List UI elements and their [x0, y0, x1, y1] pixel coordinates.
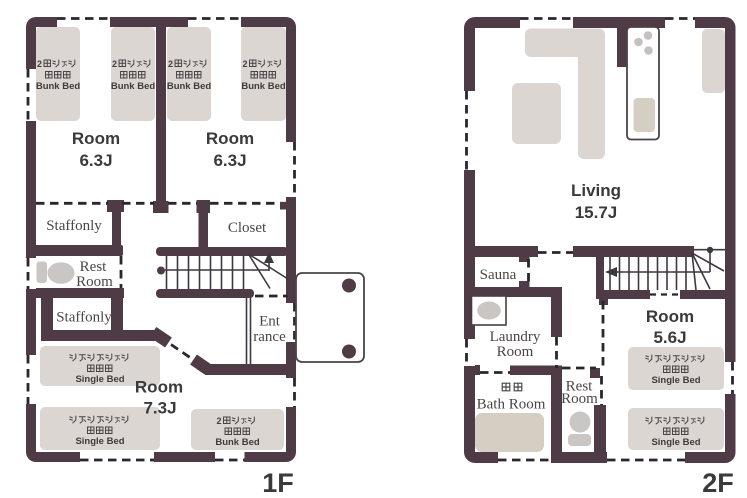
- svg-text:7.3J: 7.3J: [143, 399, 176, 418]
- svg-text:Single Bed: Single Bed: [75, 436, 124, 447]
- svg-text:Room: Room: [135, 378, 183, 397]
- svg-text:15.7J: 15.7J: [575, 203, 618, 222]
- svg-text:Rest: Rest: [80, 259, 108, 275]
- svg-text:2: 2: [168, 59, 173, 69]
- svg-text:Room: Room: [646, 307, 694, 326]
- svg-text:Room: Room: [206, 129, 254, 148]
- svg-text:Bunk Bed: Bunk Bed: [167, 81, 212, 92]
- svg-text:6.3J: 6.3J: [79, 151, 112, 170]
- svg-text:Staffonly: Staffonly: [46, 218, 102, 234]
- svg-text:Bunk Bed: Bunk Bed: [111, 81, 156, 92]
- svg-text:Bath Room: Bath Room: [477, 397, 546, 413]
- svg-text:6.3J: 6.3J: [213, 151, 246, 170]
- svg-text:Laundry: Laundry: [490, 329, 541, 345]
- svg-text:Sauna: Sauna: [480, 267, 517, 283]
- svg-text:2F: 2F: [702, 468, 734, 498]
- svg-text:Closet: Closet: [228, 220, 267, 236]
- svg-text:rance: rance: [253, 329, 286, 345]
- svg-text:Single Bed: Single Bed: [651, 375, 700, 386]
- svg-text:2: 2: [243, 59, 248, 69]
- svg-text:Bunk Bed: Bunk Bed: [36, 81, 81, 92]
- svg-text:Room: Room: [561, 391, 598, 407]
- svg-text:Room: Room: [497, 344, 534, 360]
- svg-text:5.6J: 5.6J: [653, 328, 686, 347]
- svg-text:Single Bed: Single Bed: [75, 374, 124, 385]
- svg-text:Bunk Bed: Bunk Bed: [241, 81, 286, 92]
- svg-text:Single Bed: Single Bed: [651, 437, 700, 448]
- svg-text:Living: Living: [571, 181, 621, 200]
- svg-text:2: 2: [112, 59, 117, 69]
- svg-text:2: 2: [37, 59, 42, 69]
- svg-text:Staffonly: Staffonly: [56, 310, 112, 326]
- svg-text:2: 2: [217, 416, 222, 426]
- svg-text:Room: Room: [76, 274, 113, 290]
- svg-text:Ent: Ent: [259, 314, 281, 330]
- svg-text:1F: 1F: [262, 468, 294, 498]
- svg-text:Bunk Bed: Bunk Bed: [215, 437, 260, 448]
- svg-text:Room: Room: [72, 129, 120, 148]
